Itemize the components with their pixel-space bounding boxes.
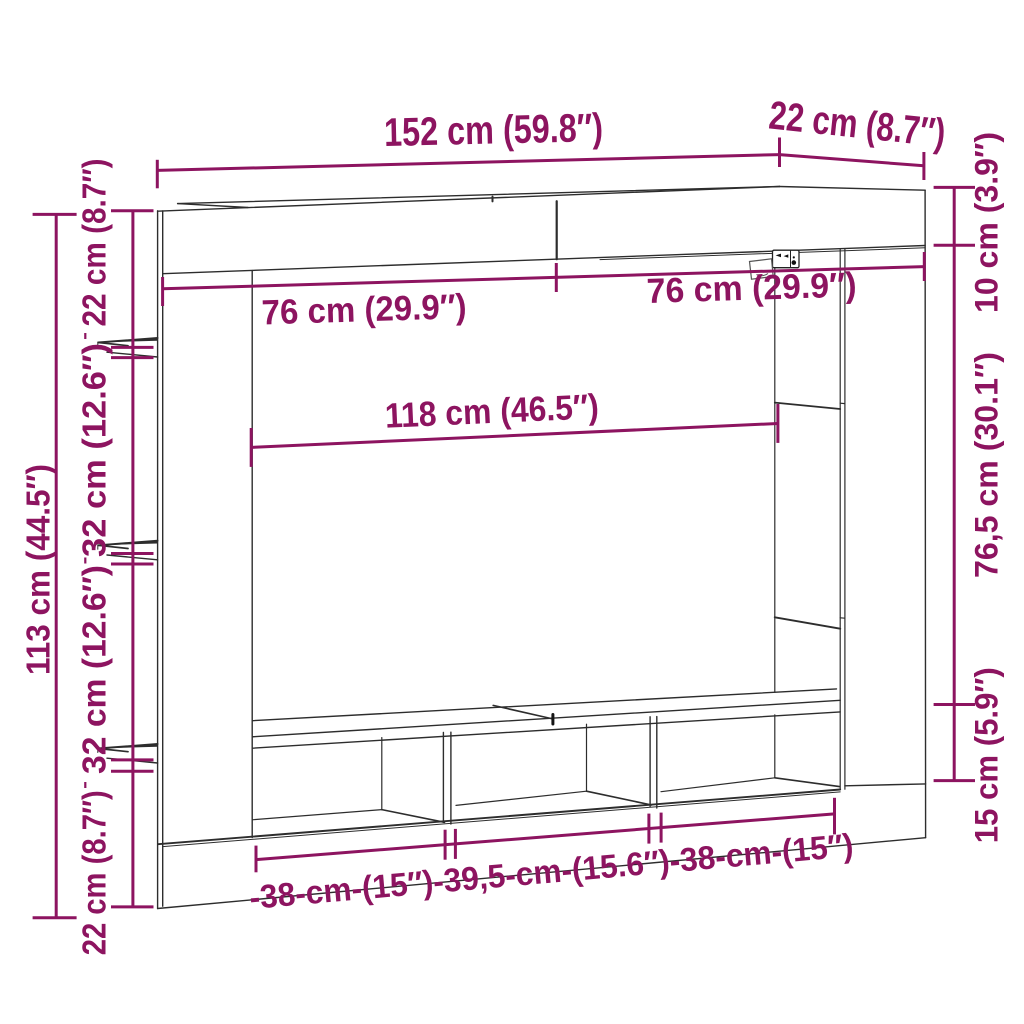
svg-text:76 cm (29.9″): 76 cm (29.9″) (646, 265, 857, 311)
svg-text:76 cm (29.9″): 76 cm (29.9″) (261, 287, 467, 332)
svg-text:22 cm (8.7″): 22 cm (8.7″) (76, 159, 113, 327)
svg-text:32 cm (12.6″): 32 cm (12.6″) (76, 565, 113, 774)
svg-text:15 cm (5.9″): 15 cm (5.9″) (969, 667, 1005, 843)
svg-text:76,5 cm (30.1″): 76,5 cm (30.1″) (969, 352, 1005, 578)
svg-text:22 cm (8.7″): 22 cm (8.7″) (76, 790, 113, 955)
svg-text:113 cm (44.5″): 113 cm (44.5″) (20, 464, 57, 675)
svg-text:152 cm (59.8″): 152 cm (59.8″) (384, 106, 604, 155)
svg-text:32 cm (12.6″): 32 cm (12.6″) (76, 343, 113, 557)
svg-text:10 cm (3.9″): 10 cm (3.9″) (969, 132, 1005, 313)
